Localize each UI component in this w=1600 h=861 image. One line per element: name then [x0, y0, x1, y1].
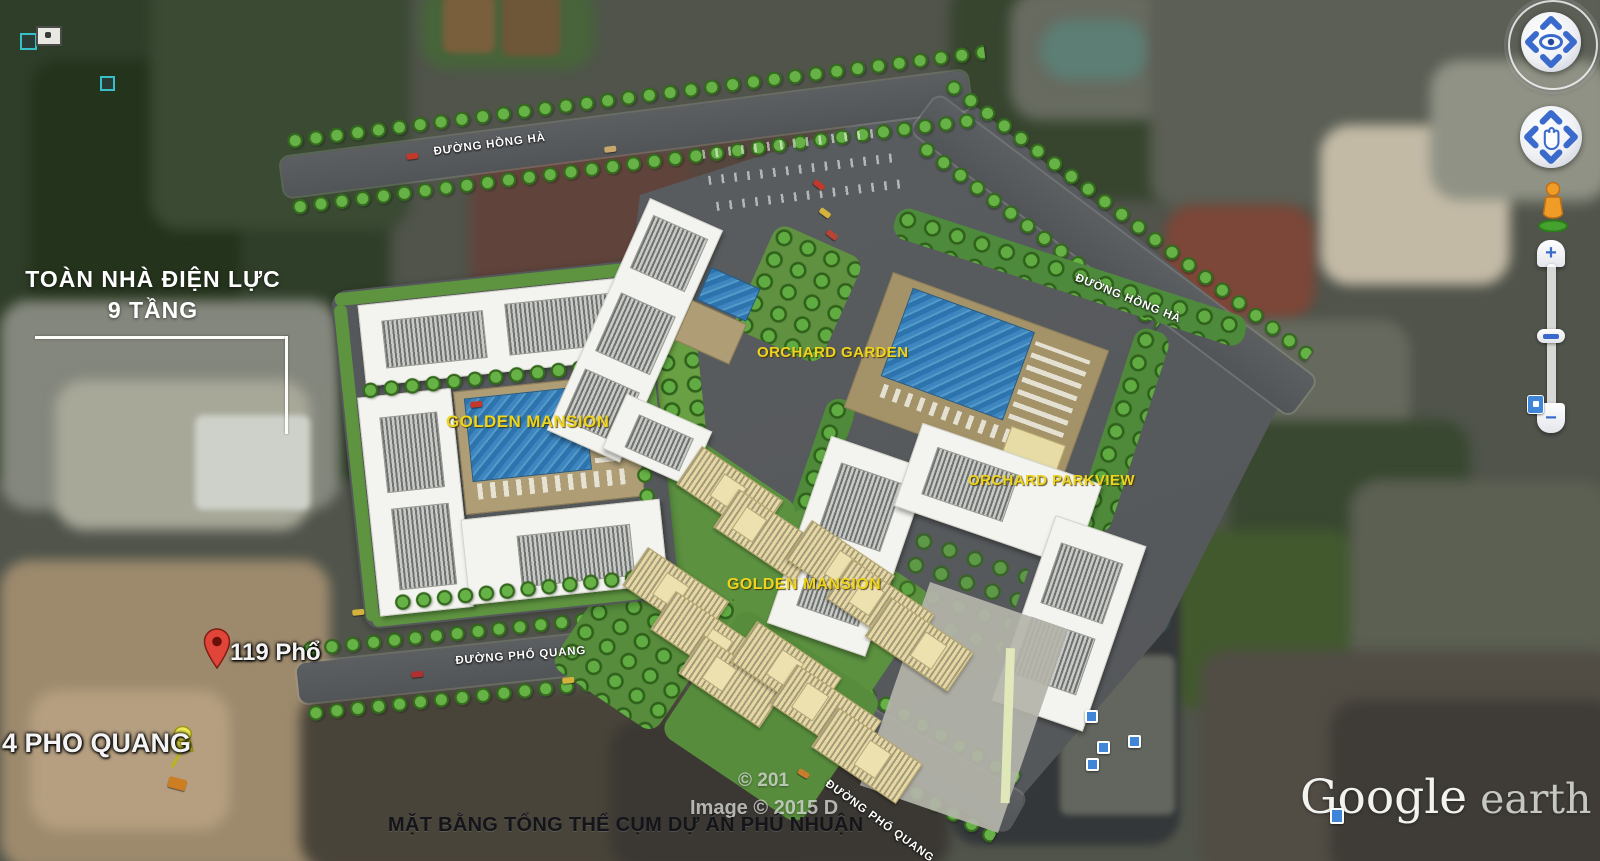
tennis-court	[502, 0, 560, 56]
photo-marker[interactable]	[1097, 741, 1110, 754]
townhouse-roof-panel	[791, 682, 829, 721]
project-label-orchard-garden: ORCHARD GARDEN	[757, 344, 908, 361]
townhouse-roof-panel	[910, 631, 947, 669]
dien-luc-building-roof	[195, 415, 310, 510]
move-joystick[interactable]	[1520, 106, 1582, 168]
red-pin-icon	[203, 628, 231, 670]
plan-caption: MẶT BẰNG TỔNG THỂ CỤM DỰ ÁN PHÚ NHUẬN	[388, 814, 863, 837]
photo-lens	[45, 32, 51, 38]
callout-line2: 9 TẦNG	[18, 295, 288, 326]
car	[411, 671, 424, 678]
callout-dien-luc: TOÀN NHÀ ĐIỆN LỰC 9 TẦNG	[18, 264, 288, 326]
car	[352, 609, 365, 616]
project-label-golden-mansion: GOLDEN MANSION	[446, 412, 609, 432]
look-joystick[interactable]	[1521, 12, 1581, 72]
move-joystick-icon	[1520, 106, 1582, 168]
logo-google: Google	[1300, 770, 1467, 825]
car	[470, 401, 483, 408]
tennis-court	[443, 0, 495, 53]
copyright-watermark: © 201	[738, 770, 789, 792]
photo-marker[interactable]	[1085, 710, 1098, 723]
photo-marker[interactable]	[1330, 808, 1344, 824]
satellite-patch	[1040, 20, 1150, 80]
look-joystick-icon	[1521, 12, 1581, 72]
zoom-slider-handle[interactable]	[1537, 329, 1565, 343]
zoom-handle-bar	[1543, 334, 1559, 339]
red-map-pin[interactable]	[203, 628, 231, 670]
google-earth-viewport[interactable]: TOÀN NHÀ ĐIỆN LỰC 9 TẦNG ĐƯỜNG HỒNG HÀ Đ…	[0, 0, 1600, 861]
car	[562, 677, 575, 684]
photo-marker[interactable]	[100, 76, 115, 91]
pegman-icon	[1536, 180, 1570, 232]
roof-hatch	[379, 411, 445, 493]
photo-thumbnail-marker[interactable]	[36, 26, 62, 46]
photo-marker[interactable]	[20, 33, 37, 50]
townhouse-roof-panel	[732, 506, 768, 543]
project-label-orchard-parkview: ORCHARD PARKVIEW	[968, 472, 1135, 489]
hand-icon	[1545, 128, 1559, 149]
roof-hatch	[391, 503, 457, 591]
townhouse-roof-panel	[854, 740, 892, 779]
project-label-golden-mansion: GOLDEN MANSION	[727, 576, 881, 594]
yellow-pushpin-label: 4 PHO QUANG	[2, 728, 191, 759]
blue-marker-icon[interactable]	[1527, 395, 1544, 414]
photo-marker[interactable]	[1128, 735, 1141, 748]
callout-leader-line	[285, 336, 288, 434]
zoom-in-button[interactable]: +	[1537, 240, 1565, 267]
red-pin-label: 119 Phổ	[230, 639, 321, 667]
photo-marker[interactable]	[1086, 758, 1099, 771]
logo-earth: earth	[1480, 775, 1591, 823]
blue-marker-dot	[1533, 401, 1539, 407]
pegman[interactable]	[1536, 180, 1570, 232]
callout-leader-line	[35, 336, 288, 339]
callout-line1: TOÀN NHÀ ĐIỆN LỰC	[18, 264, 288, 295]
